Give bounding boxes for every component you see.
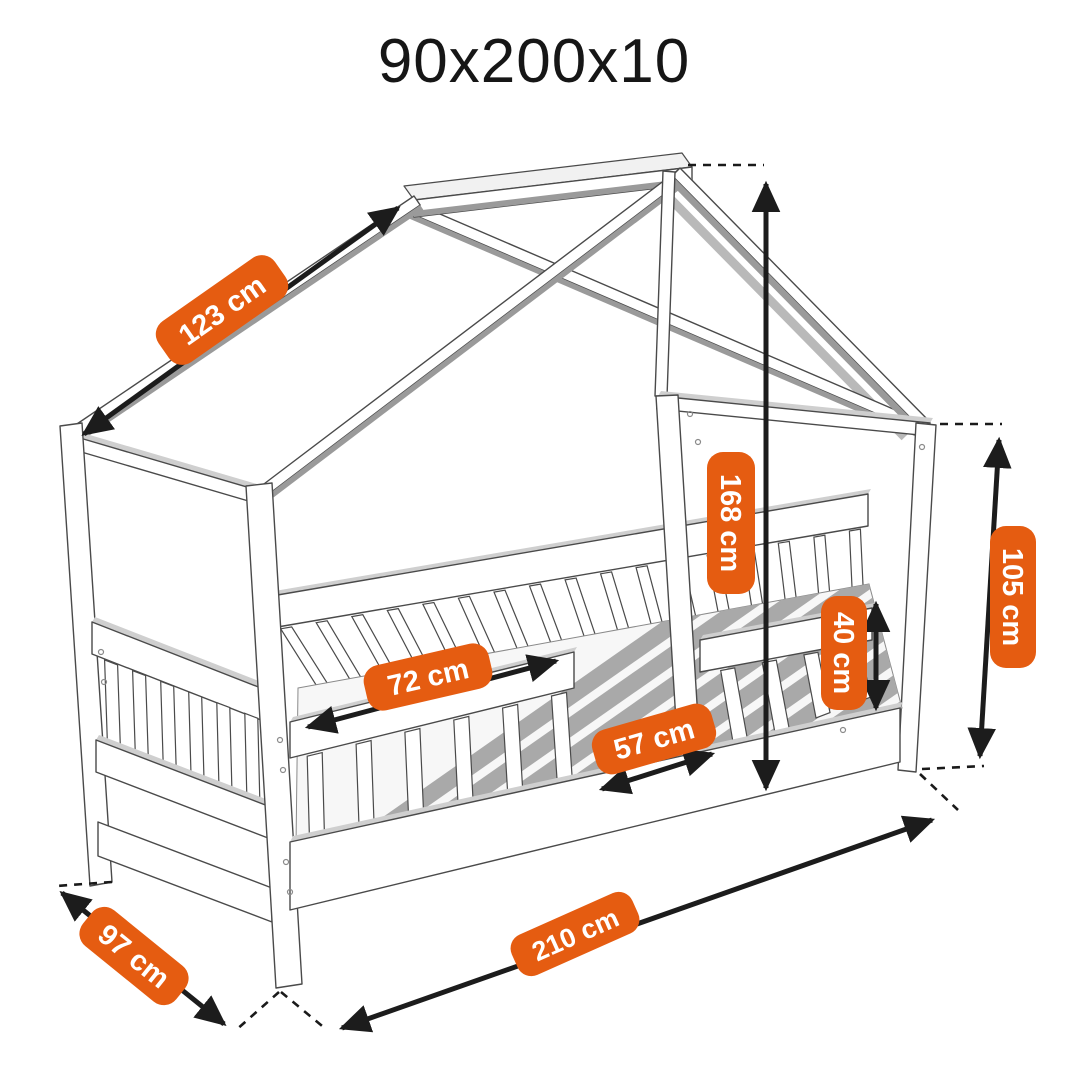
headboard-bottom-rail [96, 740, 268, 838]
slat [814, 535, 830, 595]
bed-frame-left-end [98, 822, 272, 922]
dash-floor-front-left-b [235, 992, 279, 1031]
slat [565, 578, 596, 638]
slat [494, 590, 529, 650]
post-back-right [898, 423, 936, 772]
slat [105, 660, 121, 751]
slat [189, 692, 204, 783]
dim-label-overall-height: 168 cm [707, 452, 755, 594]
slat [161, 681, 177, 772]
slat [316, 621, 362, 681]
dim-label-wall-height: 105 cm [990, 526, 1036, 668]
dim-label-text: 168 cm [714, 474, 746, 572]
dash-floor-right [920, 774, 958, 810]
slat [778, 541, 796, 601]
slat [356, 741, 374, 829]
dash-floor-front-left-a [281, 992, 327, 1030]
dim-label-text: 105 cm [996, 548, 1028, 646]
headboard [92, 617, 272, 922]
dash-post-bottom-right [922, 766, 984, 769]
slat [217, 703, 232, 794]
dim-label-text: 40 cm [827, 612, 859, 694]
tie-beam-left [76, 438, 264, 505]
diagram-page: 90x200x10 [0, 0, 1068, 1077]
slat [601, 572, 630, 632]
rafter-right-back [672, 168, 930, 430]
slat [405, 729, 424, 817]
slat [307, 753, 324, 841]
dim-label-guard-rail-height: 40 cm [821, 596, 867, 710]
dim-label-overall-width: 97 cm [73, 900, 195, 1011]
slat [133, 671, 149, 762]
dim-label-overall-length: 210 cm [506, 887, 644, 981]
slat [245, 713, 260, 804]
slat [636, 566, 662, 626]
house-bed-diagram: 123 cm 168 cm 105 cm 40 cm 72 cm 57 cm [0, 0, 1068, 1077]
slat [530, 584, 563, 644]
roof-beam-front [256, 170, 685, 499]
slat [281, 627, 329, 687]
slat [849, 529, 863, 589]
